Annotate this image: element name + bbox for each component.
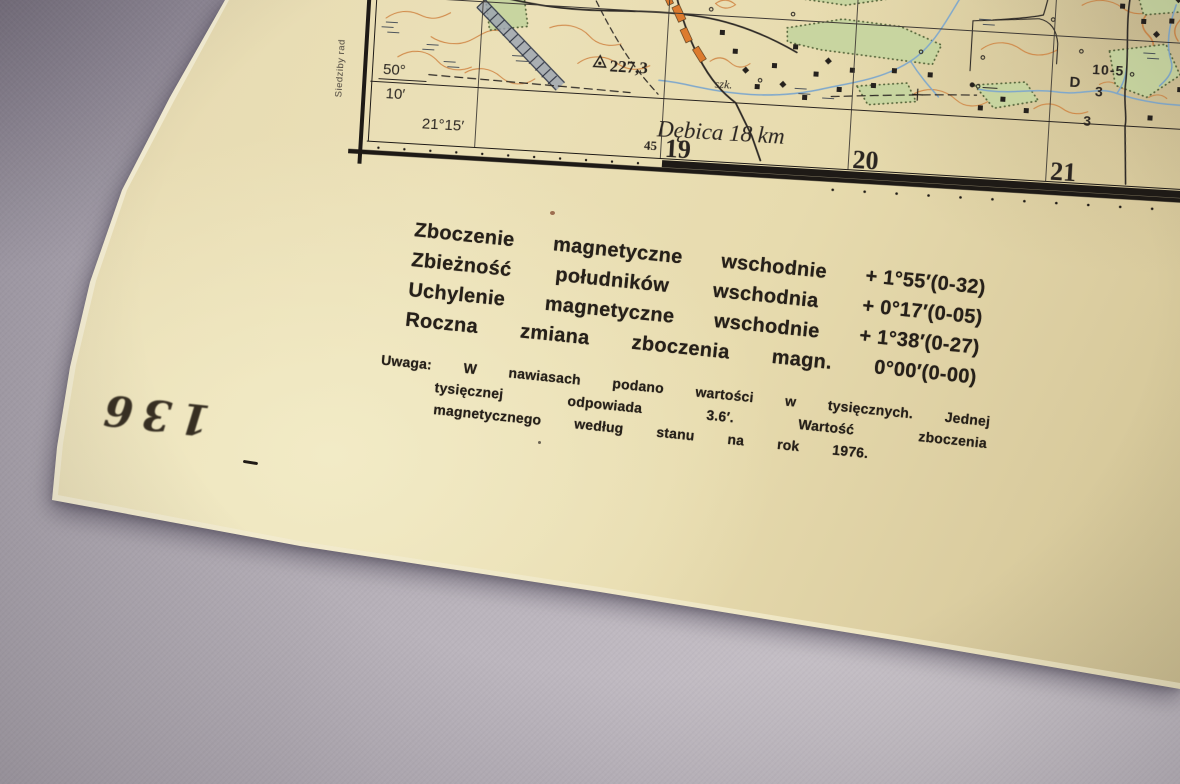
latitude-minutes-label: 10′ bbox=[385, 85, 406, 103]
forest-patches bbox=[481, 0, 1180, 127]
grid-easting-label: 20 bbox=[852, 145, 880, 175]
district-letter-label: D bbox=[1069, 74, 1081, 92]
photo-of-map-sheet: 227,3 szk. D 10-5 3 3 50° 10′ 21°15′ Dęb… bbox=[0, 0, 1180, 784]
stamp-number: 136 bbox=[93, 387, 211, 441]
note-word: w bbox=[784, 390, 797, 413]
grid-easting-label: 21 bbox=[1049, 157, 1077, 187]
note-word: 3.6′. bbox=[705, 404, 735, 429]
note-word: rok bbox=[776, 433, 800, 457]
topo-map-graphic: 227,3 szk. D 10-5 3 3 50° 10′ 21°15′ Dęb… bbox=[273, 0, 1180, 225]
note-word: na bbox=[726, 428, 745, 452]
spot-height-label: 227,3 bbox=[609, 56, 648, 77]
declination-word: magn. bbox=[771, 344, 834, 376]
note-word: stanu bbox=[655, 421, 695, 447]
paper-speck bbox=[538, 441, 541, 444]
paper-speck bbox=[550, 211, 555, 215]
grid-prefix-label: 45 bbox=[644, 138, 658, 154]
longitude-label: 21°15′ bbox=[421, 115, 464, 134]
inventory-stamp: 136 bbox=[87, 378, 218, 451]
small-point-symbols bbox=[705, 0, 1180, 118]
plot-number-label: 3 bbox=[1095, 83, 1104, 99]
declination-text-block: Zboczeniemagnetycznewschodnie+ 1°55′(0-3… bbox=[364, 214, 1029, 478]
school-label: szk. bbox=[714, 77, 732, 92]
plot-number-label: 3 bbox=[1083, 113, 1092, 129]
plot-number-label: 10-5 bbox=[1092, 61, 1125, 79]
edge-vertical-note: Siedziby rad bbox=[333, 39, 347, 98]
note-word: W bbox=[463, 357, 479, 380]
note-word: Uwaga: bbox=[380, 349, 433, 376]
ink-mark bbox=[243, 460, 258, 465]
note-word: według bbox=[573, 412, 624, 439]
note-word: 1976. bbox=[831, 439, 869, 465]
latitude-degrees-label: 50° bbox=[383, 61, 407, 79]
grid-easting-label: 19 bbox=[664, 134, 692, 164]
map-frame-corner: 227,3 szk. D 10-5 3 3 50° 10′ 21°15′ Dęb… bbox=[273, 0, 1180, 225]
